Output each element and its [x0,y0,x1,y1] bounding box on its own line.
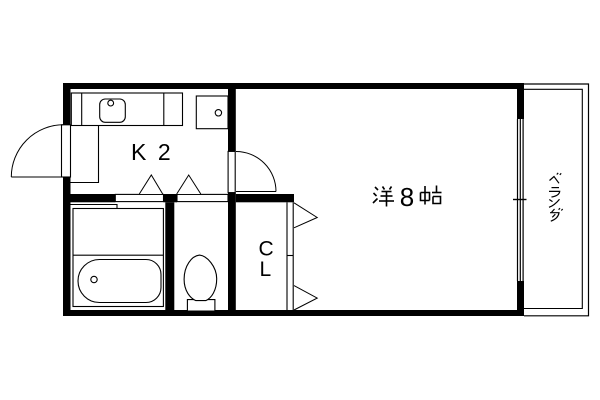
svg-text:K2: K2 [131,139,182,165]
svg-text:8: 8 [400,182,414,212]
svg-text:L: L [260,258,272,281]
